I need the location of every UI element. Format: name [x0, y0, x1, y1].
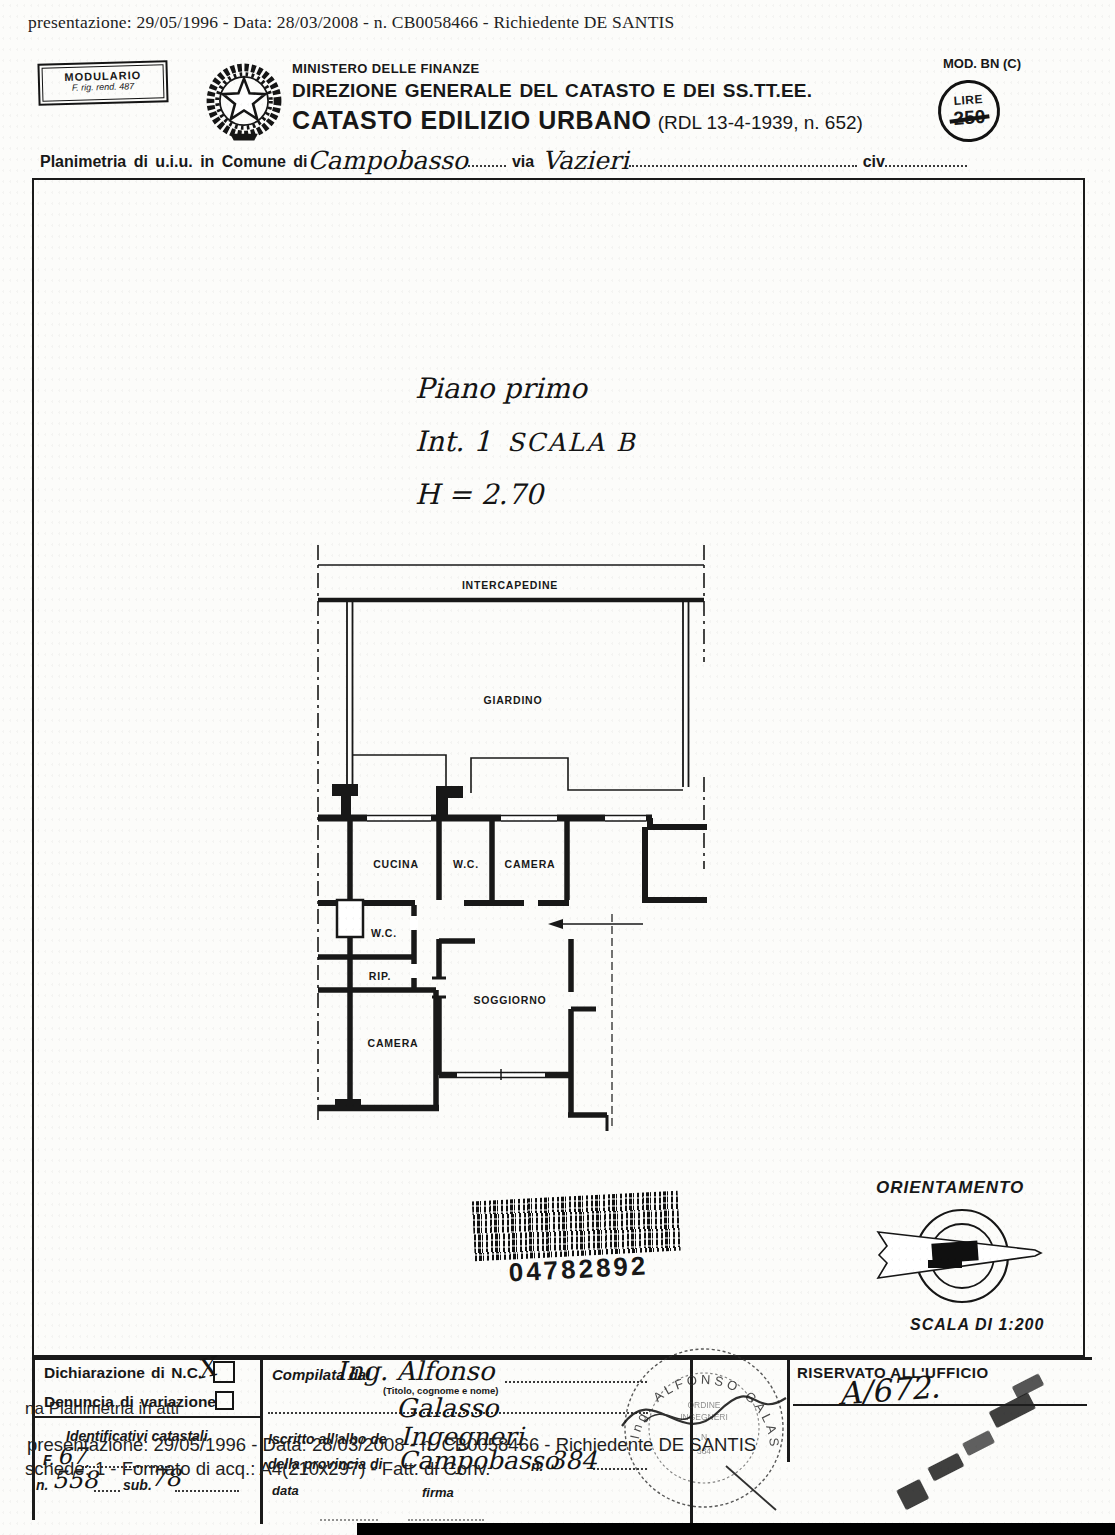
stamp-center-line1: ORDINE — [687, 1400, 720, 1410]
plan-title-line2a: Int. 1 — [415, 425, 491, 458]
comune-handwritten: Campobasso — [307, 148, 467, 173]
compilata-name2-handwritten: Galasso — [396, 1393, 498, 1423]
protocollo-handwritten: A/672. — [837, 1368, 941, 1411]
planimetria-label: Planimetria di u.i.u. in Comune di — [40, 153, 307, 171]
state-emblem-icon — [198, 58, 290, 144]
room-label-intercapedine: INTERCAPEDINE — [462, 579, 558, 591]
room-label-camera-top: CAMERA — [505, 858, 556, 870]
denuncia-checkbox — [215, 1391, 234, 1410]
modulario-line2: F. rig. rend. 487 — [43, 80, 163, 93]
document-header: MINISTERO DELLE FINANZE DIREZIONE GENERA… — [292, 62, 863, 135]
catasto-law-ref: (RDL 13-4-1939, n. 652) — [658, 112, 863, 133]
overlay-schede-line: schede: 1 - Formato di acq.: A4(210x297)… — [25, 1458, 490, 1480]
plan-title-line1: Piano primo — [415, 362, 636, 415]
planimetria-line: Planimetria di u.i.u. in Comune di Campo… — [40, 146, 1085, 171]
room-label-cucina: CUCINA — [373, 858, 419, 870]
room-label-giardino: GIARDINO — [484, 694, 543, 706]
via-label: via — [512, 153, 534, 171]
dotted-leader — [94, 1490, 120, 1492]
plan-title-line3: H = 2.70 — [415, 468, 636, 521]
barcode: 04782892 — [472, 1191, 682, 1291]
dotted-leader — [468, 165, 506, 167]
catasto-title: CATASTO EDILIZIO URBANO — [292, 106, 652, 134]
direction-label: DIREZIONE GENERALE DEL CATASTO E DEI SS.… — [292, 80, 863, 102]
room-label-soggiorno: SOGGIORNO — [473, 994, 546, 1006]
overlay-planimetria-atti: na Planimetria in atti — [25, 1399, 179, 1419]
scan-artifact-bar — [357, 1523, 1115, 1535]
dotted-leader — [320, 1519, 378, 1521]
floor-plan: INTERCAPEDINE GIARDINO CUCINA W.C. CAMER… — [305, 537, 715, 1137]
engineer-round-stamp: Ing. ALFONSO GALASSO ORDINE INGEGNERI N … — [618, 1342, 790, 1514]
plan-title: Piano primo Int. 1SCALA B H = 2.70 — [415, 362, 636, 522]
room-label-wc-top: W.C. — [453, 858, 479, 870]
compilata-name1-handwritten: Ing. Alfonso — [336, 1356, 494, 1386]
top-wall-step — [647, 818, 707, 827]
lire-value: 250 — [953, 106, 986, 130]
civ-label: civ — [863, 153, 885, 171]
shaft-closet — [337, 900, 363, 937]
mod-bn-label: MOD. BN (C) — [943, 56, 1021, 71]
entrance-arrow-icon — [548, 919, 643, 929]
firma-label: firma — [422, 1485, 454, 1500]
dichiarazione-label: Dichiarazione di N.C. — [44, 1364, 202, 1382]
scale-label: SCALA DI 1:200 — [910, 1316, 1044, 1334]
orientamento-title: ORIENTAMENTO — [876, 1178, 1024, 1198]
via-handwritten: Vazieri — [542, 148, 629, 173]
top-overlay-text: presentazione: 29/05/1996 - Data: 28/03/… — [28, 12, 675, 33]
dotted-leader — [885, 165, 967, 167]
form-top-border — [32, 1357, 1092, 1360]
lire-stamp: LIRE 250 — [936, 78, 1002, 144]
dotted-leader — [408, 1519, 484, 1521]
room-label-wc-mid: W.C. — [371, 927, 397, 939]
giardino-bottom-boundary — [352, 755, 683, 793]
data-label: data — [272, 1483, 299, 1498]
compass-icon — [870, 1200, 1055, 1312]
modulario-box: MODULARIO F. rig. rend. 487 — [37, 60, 168, 106]
ministry-label: MINISTERO DELLE FINANZE — [292, 62, 863, 77]
room-label-camera-bottom: CAMERA — [368, 1037, 419, 1049]
dotted-leader — [629, 165, 857, 167]
soggiorno-window — [457, 1069, 545, 1080]
overlay-presentazione-line: presentazione: 29/05/1996 - Data: 28/03/… — [27, 1434, 756, 1456]
dotted-leader — [175, 1490, 239, 1492]
room-label-rip: RIP. — [369, 970, 391, 982]
plan-title-line2b: SCALA B — [507, 428, 636, 457]
